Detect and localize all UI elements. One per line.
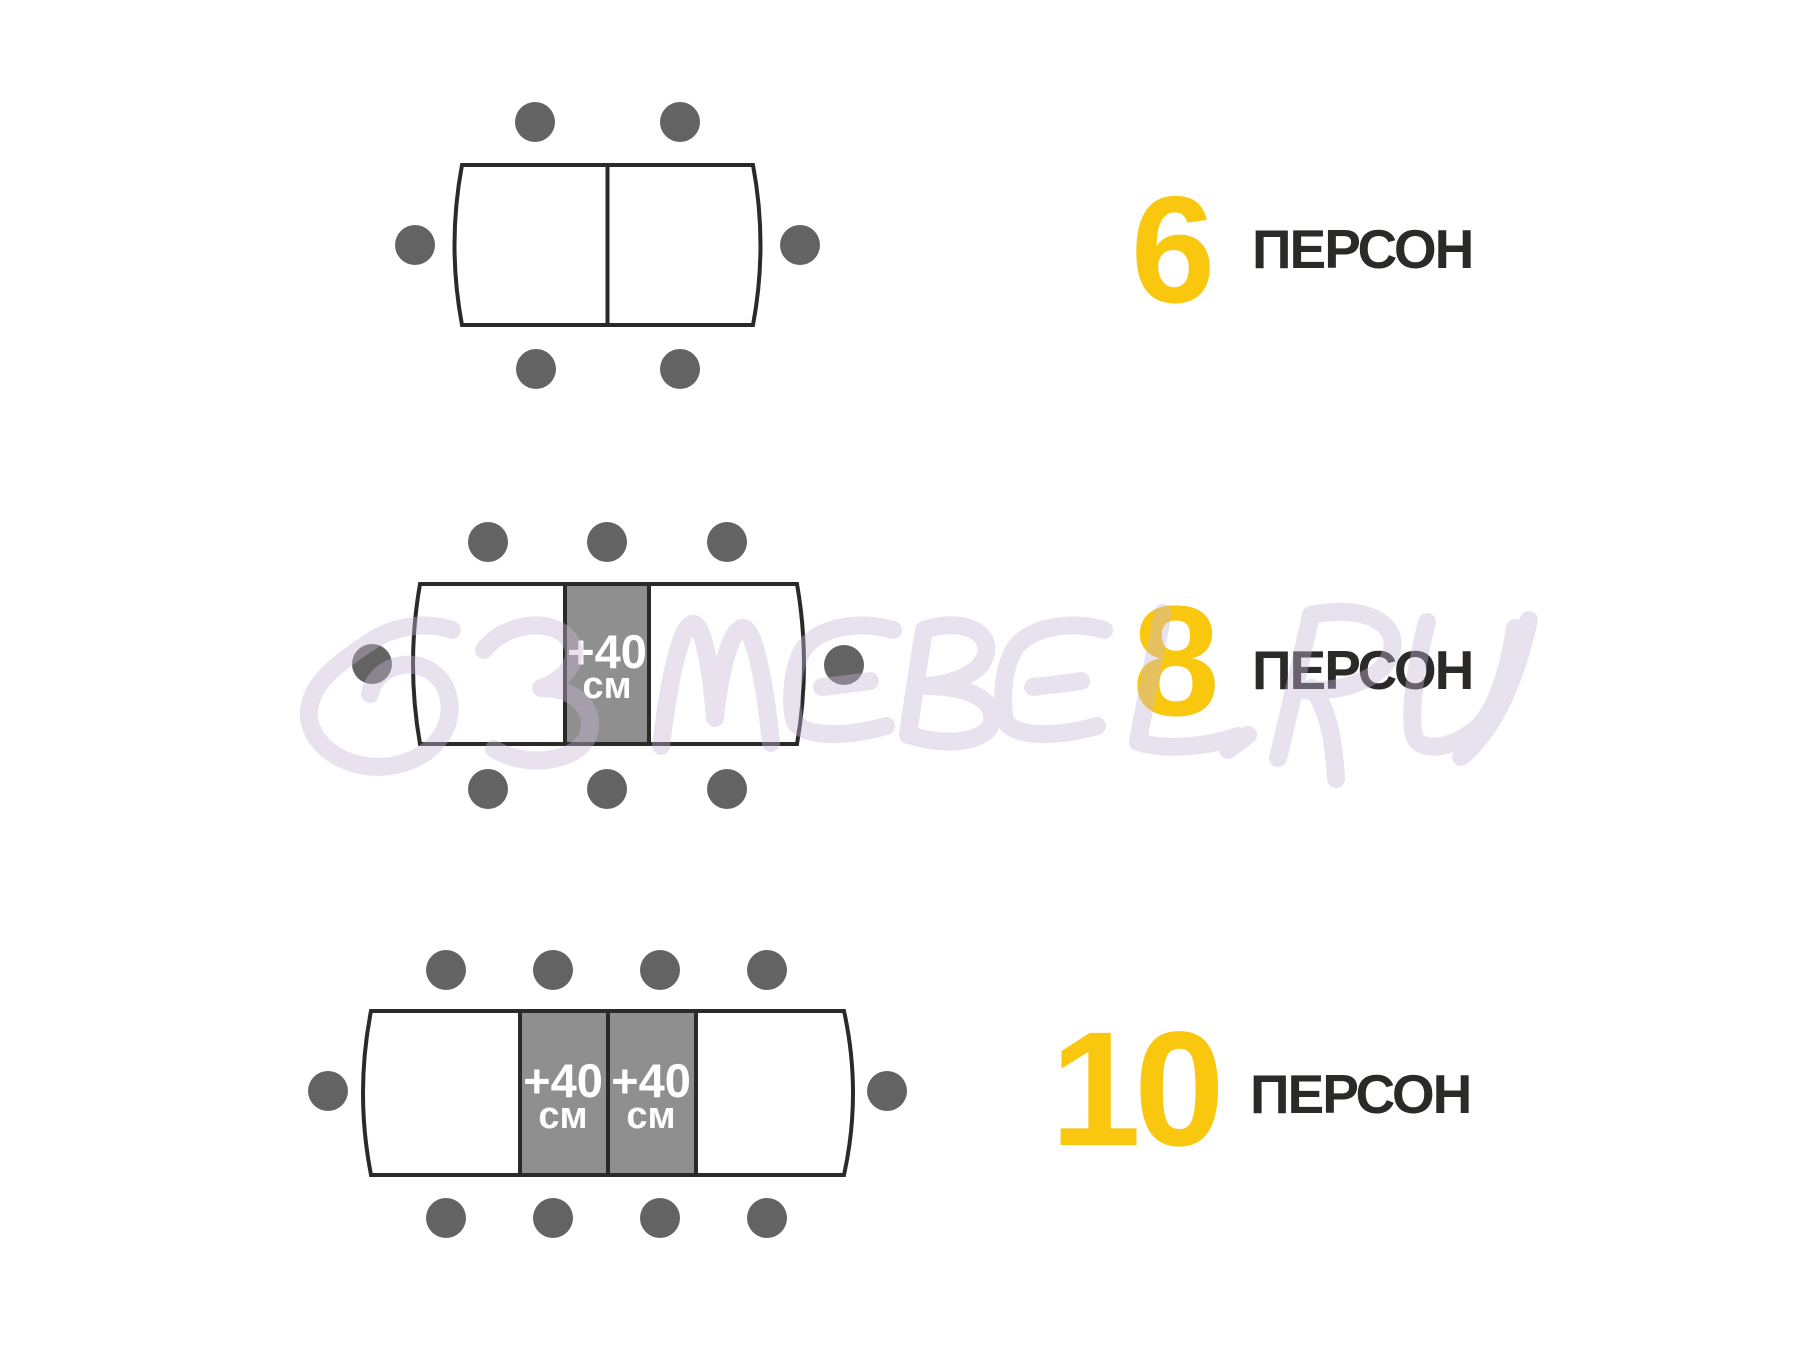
svg-text:ПЕРСОН: ПЕРСОН xyxy=(1250,1063,1470,1125)
svg-text:10: 10 xyxy=(1050,997,1218,1180)
svg-text:см: см xyxy=(538,1095,587,1137)
svg-text:6: 6 xyxy=(1131,165,1216,335)
svg-text:ПЕРСОН: ПЕРСОН xyxy=(1252,218,1472,280)
svg-text:см: см xyxy=(626,1095,675,1137)
